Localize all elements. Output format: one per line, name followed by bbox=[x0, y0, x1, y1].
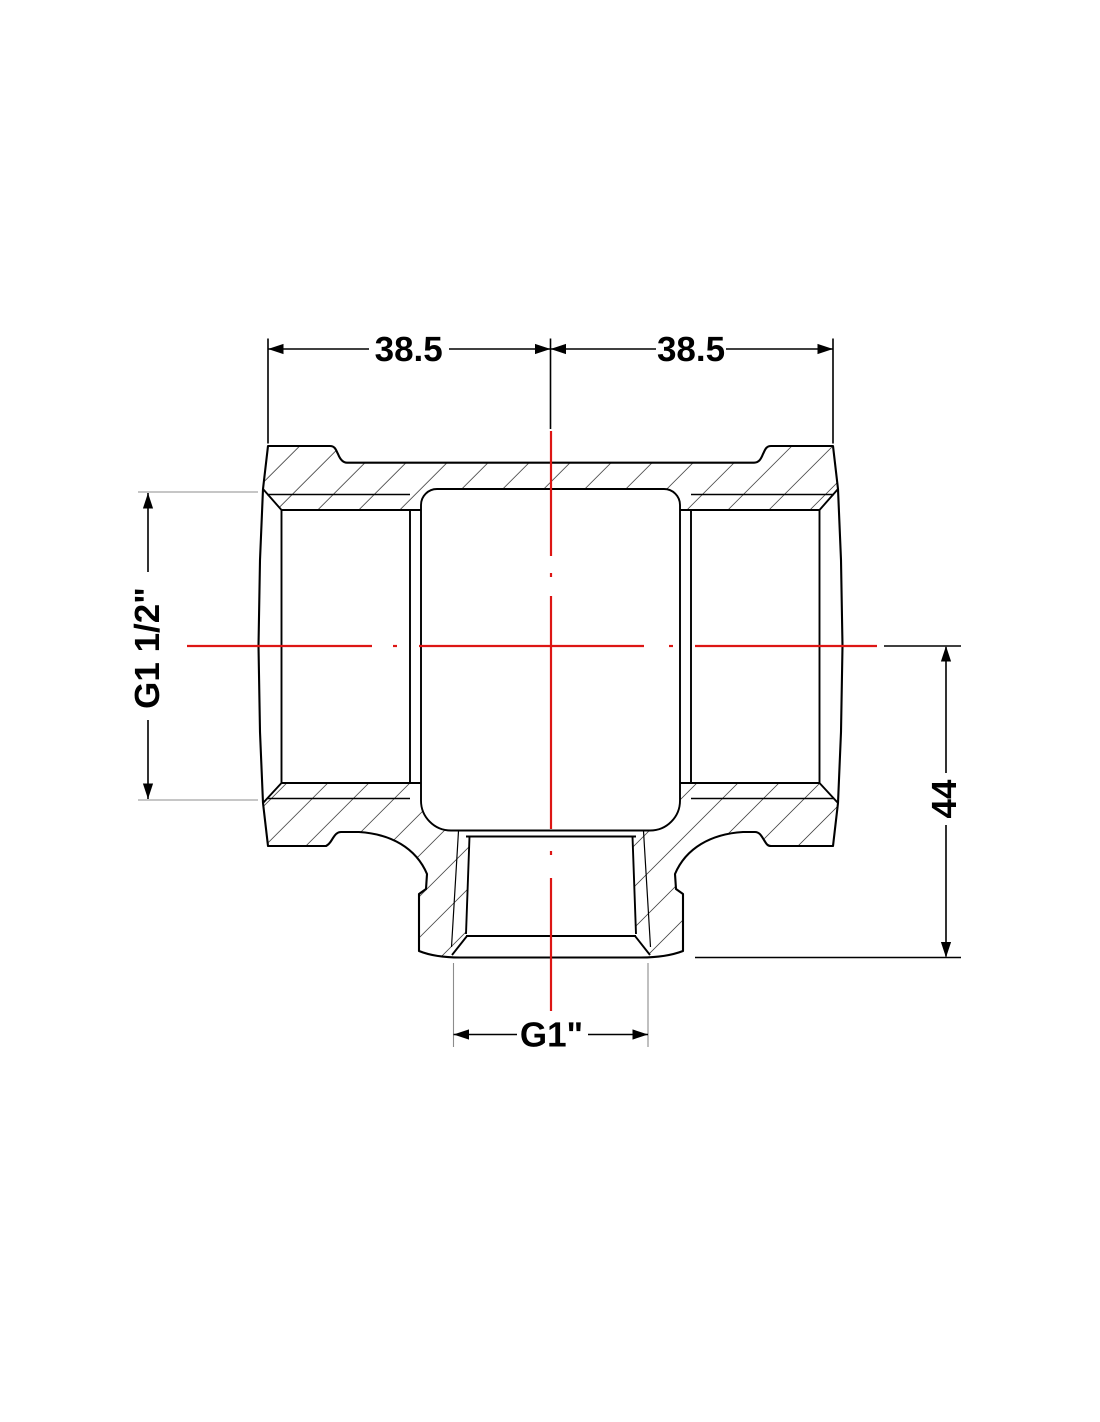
svg-text:38.5: 38.5 bbox=[375, 330, 443, 369]
svg-text:44: 44 bbox=[925, 779, 964, 818]
svg-text:G1 1/2": G1 1/2" bbox=[128, 587, 167, 709]
svg-text:G1": G1" bbox=[520, 1016, 583, 1055]
svg-text:38.5: 38.5 bbox=[657, 330, 725, 369]
